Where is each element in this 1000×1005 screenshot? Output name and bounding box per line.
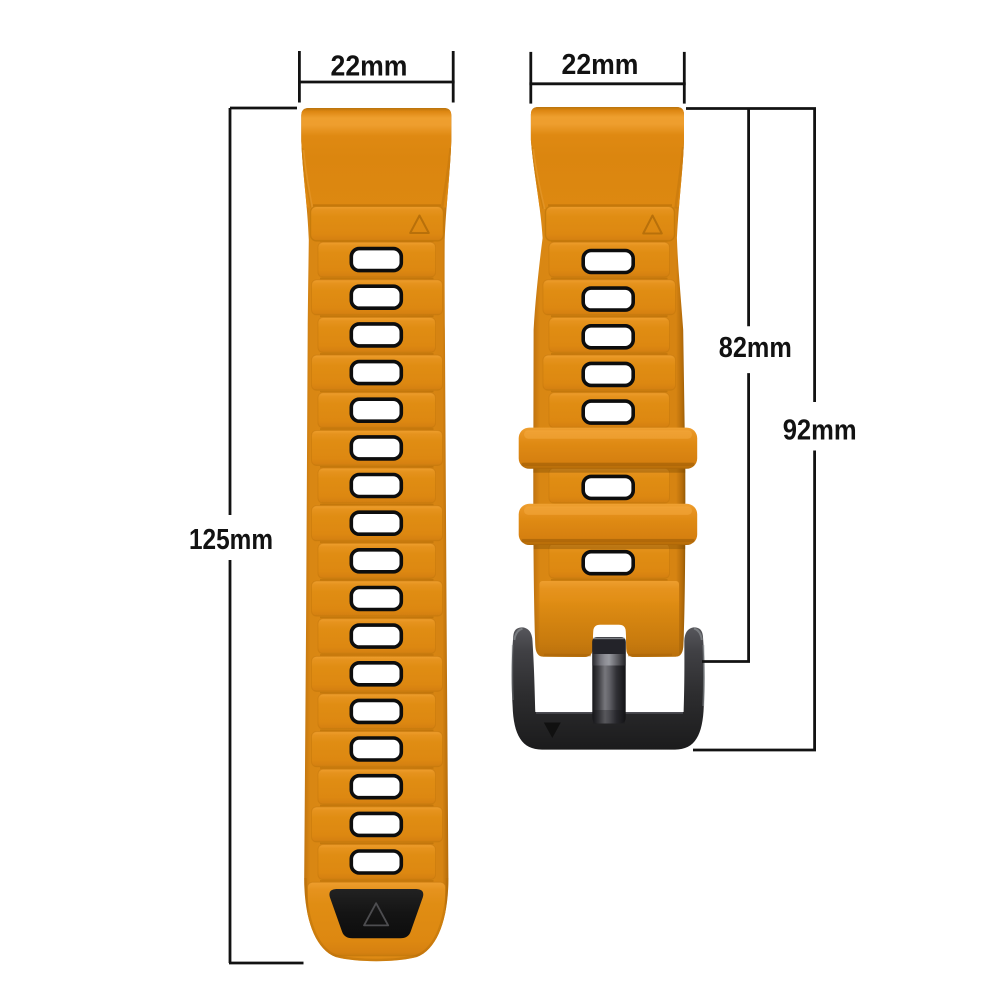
svg-text:22mm: 22mm — [331, 51, 408, 83]
svg-text:125mm: 125mm — [189, 524, 273, 556]
svg-text:82mm: 82mm — [719, 332, 792, 364]
svg-text:22mm: 22mm — [562, 49, 639, 81]
svg-text:92mm: 92mm — [783, 415, 857, 447]
